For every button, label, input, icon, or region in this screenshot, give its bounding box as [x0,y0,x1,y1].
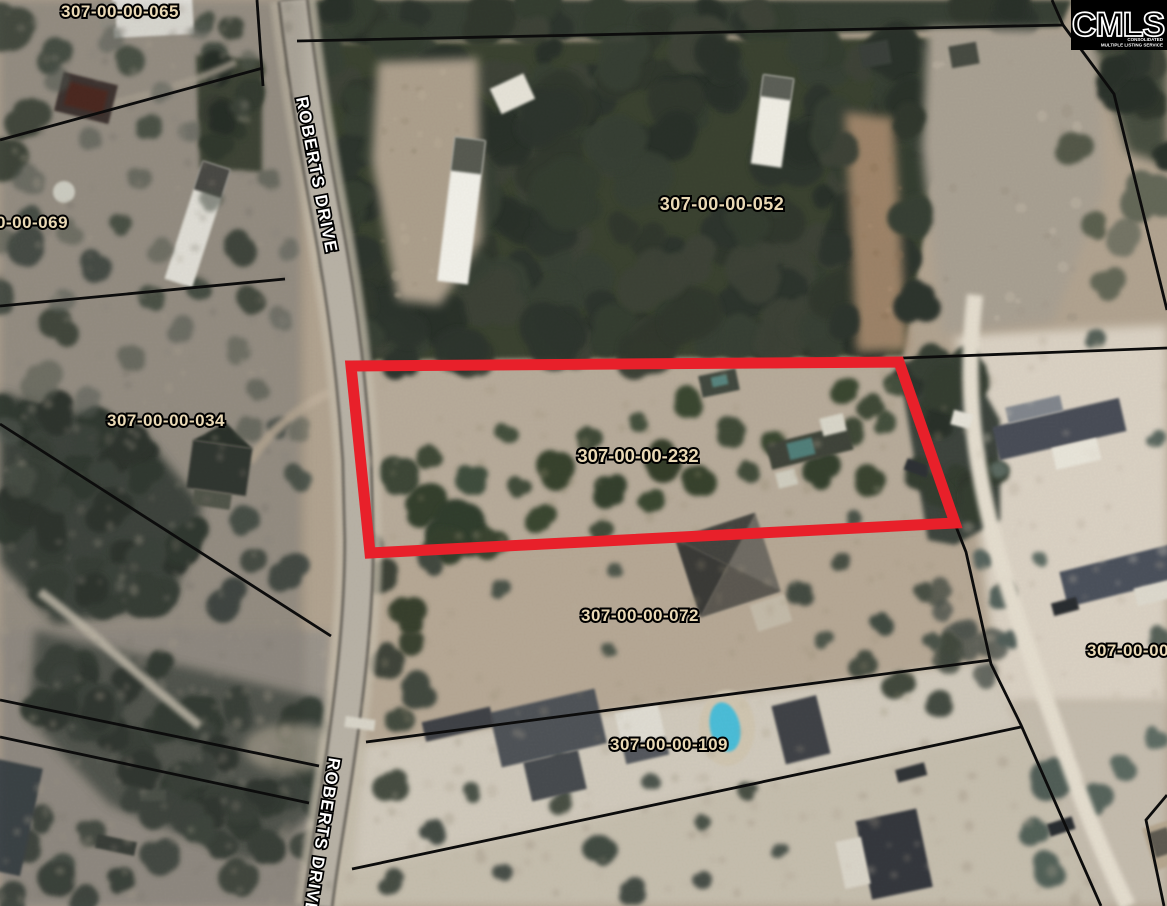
svg-text:307-00-00-0: 307-00-00-0 [1087,641,1167,660]
svg-text:307-00-00-052: 307-00-00-052 [660,194,785,214]
svg-text:307-00-00-065: 307-00-00-065 [61,2,179,21]
svg-text:307-00-00-232: 307-00-00-232 [577,445,698,466]
svg-text:307-00-00-072: 307-00-00-072 [581,606,699,625]
svg-text:307-00-00-109: 307-00-00-109 [610,735,728,754]
svg-text:CONSOLIDATED: CONSOLIDATED [1127,37,1163,42]
svg-text:307-00-00-034: 307-00-00-034 [107,411,225,430]
svg-text:MULTIPLE LISTING SERVICE: MULTIPLE LISTING SERVICE [1101,43,1163,48]
svg-text:0-00-069: 0-00-069 [0,213,68,232]
